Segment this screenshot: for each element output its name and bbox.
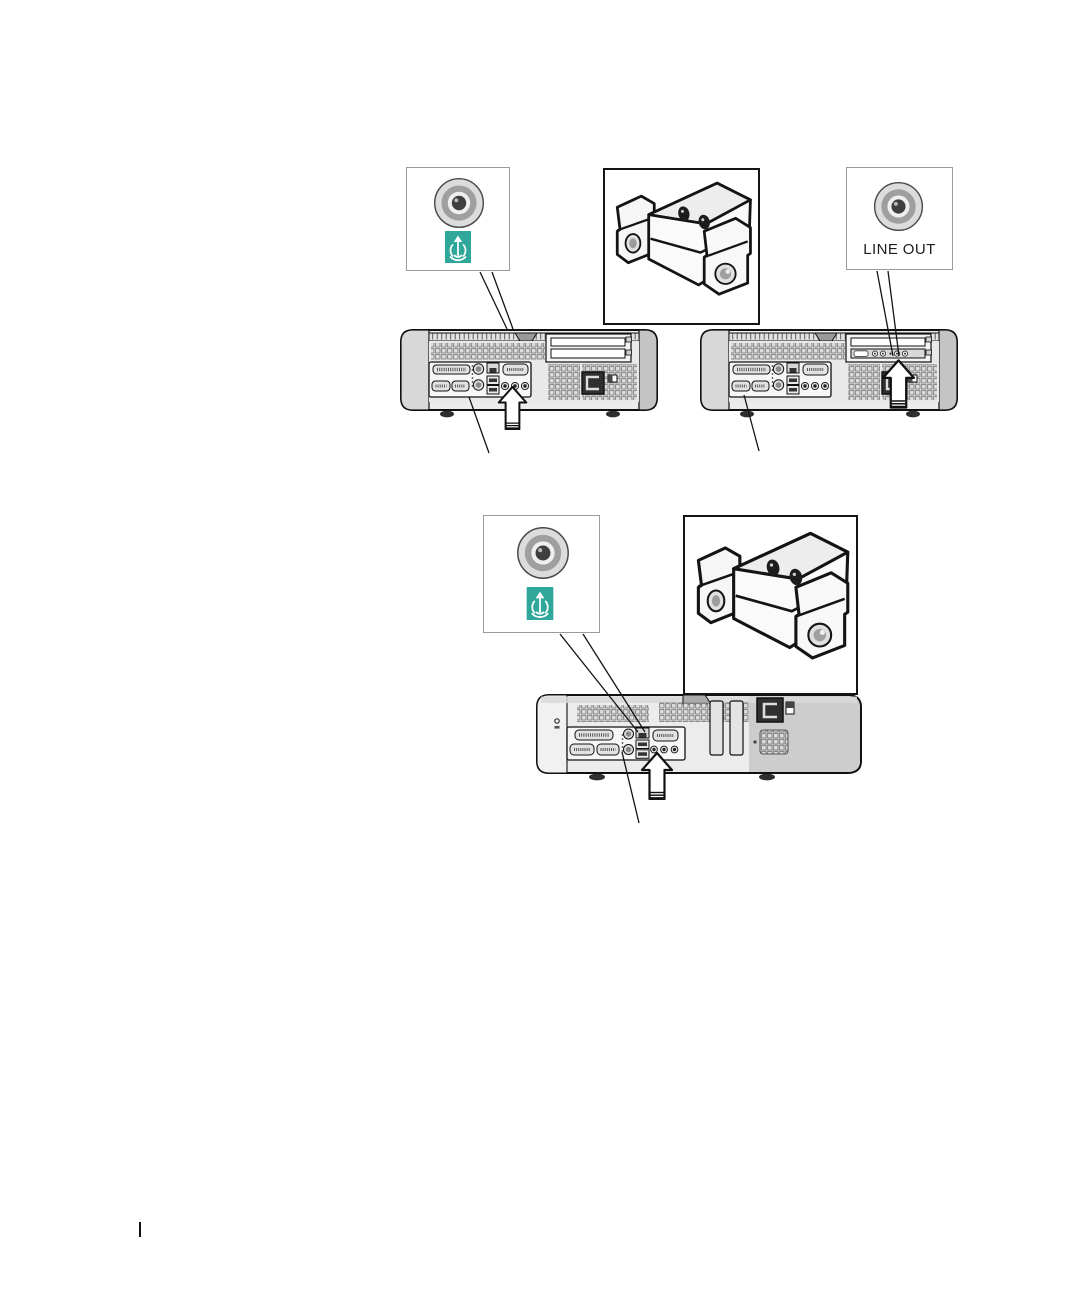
desktop-speakers-illustration-icon [608, 172, 756, 322]
up-arrow-icon [640, 752, 674, 800]
up-arrow-icon [496, 386, 529, 430]
speaker-line-out-symbol-icon [526, 587, 554, 620]
line-out-callout: LINE OUT [846, 167, 953, 270]
speakers-inset-bottom [683, 515, 858, 695]
computer-back-panel-2-with-audio-card [699, 324, 959, 420]
audio-jack-icon [432, 176, 486, 230]
computer-back-panel-3 [533, 691, 863, 783]
manual-page: LINE OUT [0, 0, 1081, 1297]
line-out-label: LINE OUT [847, 241, 952, 258]
up-arrow-icon [881, 358, 916, 410]
computer-back-panel-1 [399, 324, 659, 420]
footer-page-divider-icon [139, 1222, 141, 1237]
speaker-connector-callout-bottom [483, 515, 600, 633]
speakers-inset-top [603, 168, 760, 325]
speaker-line-out-symbol-icon [445, 231, 471, 263]
callout-line-top-left-a [480, 272, 507, 329]
callout-line-top-left-b [492, 272, 513, 329]
desktop-speakers-illustration-icon [688, 520, 854, 690]
audio-jack-icon [872, 180, 925, 233]
audio-jack-icon [515, 525, 571, 581]
speaker-connector-callout-top [406, 167, 510, 271]
